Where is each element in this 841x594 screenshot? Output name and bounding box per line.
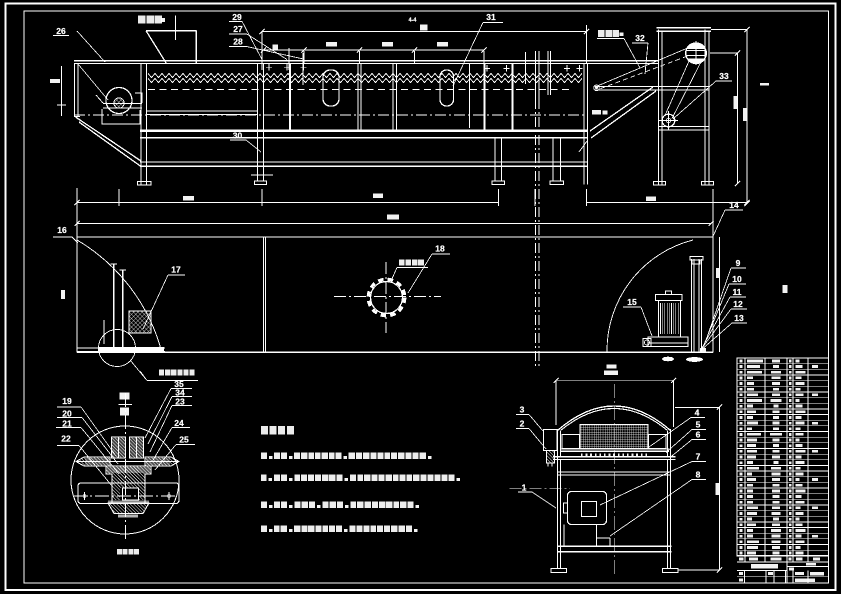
svg-text:33: 33 [719,71,729,81]
svg-text:4-4: 4-4 [409,18,418,24]
svg-text:15: 15 [627,297,637,307]
svg-text:24: 24 [174,418,184,428]
svg-text:3: 3 [520,405,525,415]
svg-text:16: 16 [57,225,67,235]
svg-text:5: 5 [696,420,701,430]
svg-text:22: 22 [61,434,71,444]
svg-text:31: 31 [486,12,496,22]
svg-text:8: 8 [696,470,701,480]
svg-text:18: 18 [435,244,445,254]
svg-text:9: 9 [736,258,741,268]
svg-text:17: 17 [171,265,181,275]
svg-text:4: 4 [695,408,700,418]
svg-text:14: 14 [729,200,739,210]
svg-text:12: 12 [733,299,743,309]
svg-text:20: 20 [62,409,72,419]
svg-text:6: 6 [696,430,701,440]
svg-text:13: 13 [734,313,744,323]
svg-text:19: 19 [62,396,72,406]
svg-text:21: 21 [62,419,72,429]
svg-text:26: 26 [56,26,66,36]
svg-text:10: 10 [732,274,742,284]
svg-text:30: 30 [233,131,243,141]
svg-text:29: 29 [232,12,242,22]
svg-text:23: 23 [175,397,185,407]
svg-text:25: 25 [179,435,189,445]
svg-text:1: 1 [522,483,527,493]
svg-text:7: 7 [696,452,701,462]
svg-text:28: 28 [233,37,243,47]
svg-text:2: 2 [520,419,525,429]
svg-text:11: 11 [733,287,742,297]
svg-text:27: 27 [233,24,243,34]
svg-text:32: 32 [635,33,645,43]
